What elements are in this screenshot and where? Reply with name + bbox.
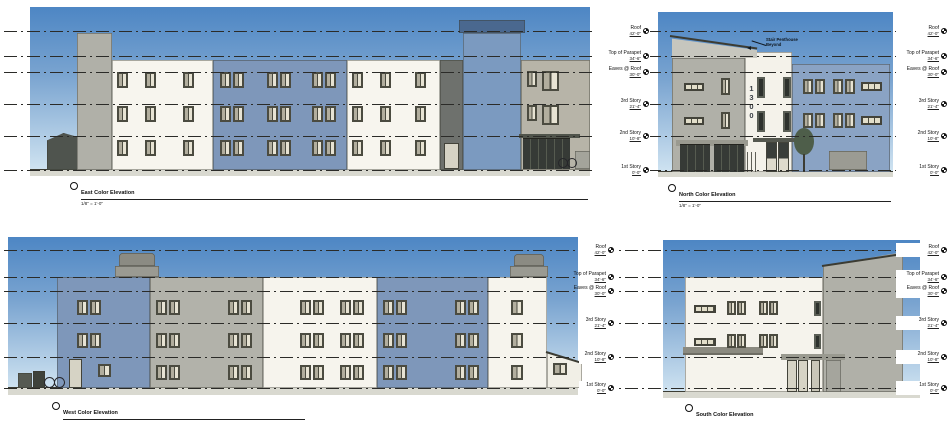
window-ribbon [684, 117, 704, 125]
north-elevation-title: North Color Elevation 1/8" = 1'-0" [668, 183, 891, 208]
window [352, 106, 363, 122]
window [169, 300, 180, 315]
window [300, 300, 311, 315]
window [313, 365, 324, 380]
window [241, 300, 252, 315]
datum-target-icon [608, 288, 614, 294]
window [737, 334, 746, 348]
title-text: North Color Elevation [679, 192, 736, 199]
level-elevation: 42'-0" [928, 250, 939, 255]
window [352, 140, 363, 156]
window-ribbon [694, 305, 716, 313]
datum-target-icon [941, 247, 947, 253]
level-elevation: 34'-6" [573, 277, 606, 282]
east-bicycle-wheel [567, 158, 577, 168]
window [468, 300, 479, 315]
window [90, 300, 101, 315]
level-marker: Roof42'-0" [592, 24, 650, 38]
window [267, 106, 278, 122]
datum-target-icon [941, 28, 947, 34]
north-bike-rack [747, 152, 759, 172]
level-elevation: 42'-0" [928, 31, 939, 36]
west-elevation-title: West Color Elevation 1/8" = 1'-0" [52, 401, 305, 421]
level-line [4, 170, 948, 171]
datum-target-icon [643, 133, 649, 139]
window [415, 106, 426, 122]
window [267, 140, 278, 156]
level-marker: Top of Parapet34'-6" [592, 49, 650, 63]
window-dark [814, 301, 821, 316]
title-scale: 1/8" = 1'-0" [81, 201, 588, 206]
level-elevation: 0'-0" [621, 170, 641, 175]
level-marker: 2nd Story10'-8" [592, 129, 650, 143]
datum-target-icon [941, 288, 947, 294]
title-scale: 1/8" = 1'-0" [679, 203, 891, 208]
window [220, 72, 231, 88]
window [815, 79, 825, 94]
east-entry-structure [47, 133, 80, 170]
level-line [4, 277, 948, 278]
level-marker: 2nd Story10'-8" [896, 129, 948, 143]
window [380, 106, 391, 122]
window [267, 72, 278, 88]
datum-target-icon [643, 101, 649, 107]
level-marker: 1st Story0'-0" [896, 381, 948, 395]
level-elevation: 10'-8" [585, 357, 606, 362]
detail-circle-icon [70, 182, 78, 190]
window [312, 140, 323, 156]
window [340, 365, 351, 380]
window [511, 300, 523, 315]
window [542, 105, 559, 125]
elevation-sheet: 1300 Stair Penthouse Beyond E [0, 0, 950, 421]
window [313, 333, 324, 348]
window [380, 140, 391, 156]
level-marker: Roof42'-0" [579, 243, 615, 257]
window-dark [783, 77, 791, 98]
west-roof-mech-base [510, 266, 548, 277]
window [845, 113, 855, 128]
window [396, 333, 407, 348]
east-elevation-title: East Color Elevation 1/8" = 1'-0" [70, 181, 588, 206]
window [313, 300, 324, 315]
level-line [4, 31, 948, 32]
window [380, 72, 391, 88]
window [145, 140, 156, 156]
datum-target-icon [941, 274, 947, 280]
window [468, 333, 479, 348]
window [340, 333, 351, 348]
window [300, 365, 311, 380]
window [727, 334, 736, 348]
window-dark [783, 111, 791, 132]
window [228, 333, 239, 348]
level-elevation: 10'-8" [918, 136, 939, 141]
level-elevation: 21'-4" [621, 104, 641, 109]
window [117, 106, 128, 122]
level-marker: Top of Parapet34'-6" [579, 270, 615, 284]
level-marker: Roof42'-0" [896, 24, 948, 38]
level-marker: 2nd Story10'-8" [579, 350, 615, 364]
window [220, 106, 231, 122]
window [233, 72, 244, 88]
window [383, 300, 394, 315]
window-dark [757, 111, 765, 132]
east-stair-tower [77, 33, 112, 170]
datum-target-icon [941, 133, 947, 139]
window [815, 113, 825, 128]
window [542, 71, 559, 91]
level-line [4, 323, 948, 324]
level-marker: Top of Parapet34'-6" [896, 270, 948, 284]
window [169, 333, 180, 348]
window [803, 113, 813, 128]
datum-target-icon [608, 320, 614, 326]
level-elevation: 30'-0" [907, 72, 939, 77]
datum-target-icon [643, 167, 649, 173]
north-tree [794, 128, 814, 155]
window [325, 72, 336, 88]
window [77, 333, 88, 348]
window [183, 106, 194, 122]
window [769, 334, 778, 348]
window [352, 72, 363, 88]
datum-target-icon [941, 354, 947, 360]
north-utility-box [829, 151, 867, 170]
window [383, 333, 394, 348]
window [312, 72, 323, 88]
detail-circle-icon [52, 402, 60, 410]
window-ribbon [861, 82, 882, 91]
level-line [4, 136, 948, 137]
window [527, 71, 537, 87]
window [117, 72, 128, 88]
level-marker: 1st Story0'-0" [592, 163, 650, 177]
window [396, 300, 407, 315]
north-storefront-panel [714, 144, 744, 172]
datum-target-icon [643, 69, 649, 75]
west-roof-mech-base [115, 266, 159, 277]
title-text: South Color Elevation [696, 412, 753, 419]
datum-target-icon [643, 53, 649, 59]
window [300, 333, 311, 348]
window [353, 365, 364, 380]
window [353, 300, 364, 315]
level-line [4, 291, 948, 292]
datum-target-icon [941, 101, 947, 107]
window-ribbon [861, 116, 882, 125]
window [759, 334, 768, 348]
detail-circle-icon [685, 404, 693, 412]
title-text: West Color Elevation [63, 410, 118, 417]
level-line [4, 56, 948, 57]
level-elevation: 0'-0" [586, 388, 606, 393]
window [241, 333, 252, 348]
window [280, 140, 291, 156]
penthouse-note: Stair Penthouse Beyond [766, 38, 800, 48]
level-elevation: 0'-0" [919, 388, 939, 393]
window [280, 106, 291, 122]
window-ribbon [694, 338, 716, 346]
datum-target-icon [608, 247, 614, 253]
window [415, 140, 426, 156]
west-roof-mech-unit [119, 253, 155, 266]
level-elevation: 34'-6" [906, 56, 939, 61]
level-elevation: 0'-0" [919, 170, 939, 175]
window [156, 333, 167, 348]
east-side-door [444, 143, 459, 169]
level-marker: Eaves @ Roof30'-0" [592, 65, 650, 79]
level-marker: Eaves @ Roof30'-0" [896, 284, 948, 298]
window [511, 365, 523, 380]
level-marker: Roof42'-0" [896, 243, 948, 257]
level-elevation: 21'-4" [919, 323, 939, 328]
datum-target-icon [608, 354, 614, 360]
window [759, 301, 768, 315]
level-marker: Eaves @ Roof30'-0" [896, 65, 948, 79]
level-elevation: 30'-0" [609, 72, 641, 77]
level-line [4, 388, 948, 389]
window [312, 106, 323, 122]
north-entry-door [778, 142, 789, 172]
window [228, 365, 239, 380]
window [383, 365, 394, 380]
window [721, 78, 730, 95]
window [845, 79, 855, 94]
east-elevator-tower [463, 33, 521, 170]
window [90, 333, 101, 348]
datum-target-icon [941, 167, 947, 173]
window [833, 79, 843, 94]
window [325, 106, 336, 122]
window-dark [814, 334, 821, 349]
west-roof-mech-unit [514, 254, 544, 266]
window [833, 113, 843, 128]
window [156, 300, 167, 315]
west-equipment-box [18, 373, 32, 388]
window [455, 333, 466, 348]
datum-target-icon [941, 69, 947, 75]
level-elevation: 42'-0" [630, 31, 641, 36]
window [77, 300, 88, 315]
level-marker: 3rd Story21'-4" [579, 316, 615, 330]
datum-target-icon [941, 385, 947, 391]
window [169, 365, 180, 380]
level-elevation: 10'-8" [918, 357, 939, 362]
window [241, 365, 252, 380]
window [353, 333, 364, 348]
level-elevation: 42'-0" [595, 250, 606, 255]
datum-target-icon [643, 28, 649, 34]
window [145, 72, 156, 88]
level-marker: 1st Story0'-0" [896, 163, 948, 177]
level-marker: 1st Story0'-0" [579, 381, 615, 395]
level-line [4, 250, 948, 251]
level-elevation: 21'-4" [586, 323, 606, 328]
detail-circle-icon [668, 184, 676, 192]
window [183, 72, 194, 88]
window [117, 140, 128, 156]
window [145, 106, 156, 122]
datum-target-icon [941, 53, 947, 59]
window [415, 72, 426, 88]
level-elevation: 10'-8" [620, 136, 641, 141]
west-equipment-box [33, 371, 45, 388]
window [228, 300, 239, 315]
level-marker: 3rd Story21'-4" [896, 97, 948, 111]
level-elevation: 34'-6" [906, 277, 939, 282]
level-marker: Top of Parapet34'-6" [896, 49, 948, 63]
title-text: East Color Elevation [81, 190, 135, 197]
window [233, 140, 244, 156]
level-line [4, 72, 948, 73]
window [455, 365, 466, 380]
window [396, 365, 407, 380]
window [803, 79, 813, 94]
window [721, 112, 730, 129]
datum-target-icon [608, 385, 614, 391]
window [727, 301, 736, 315]
window [156, 365, 167, 380]
north-storefront-panel [680, 144, 710, 172]
window [769, 301, 778, 315]
level-marker: Eaves @ Roof30'-0" [579, 284, 615, 298]
north-entry-door [766, 142, 777, 172]
window [737, 301, 746, 315]
address-sign: 1300 [747, 84, 756, 140]
level-elevation: 30'-0" [907, 291, 939, 296]
west-entry-door [69, 359, 82, 388]
window [553, 363, 567, 375]
note-arrowhead-icon [747, 46, 751, 50]
east-utility-box [575, 151, 590, 169]
level-elevation: 34'-6" [608, 56, 641, 61]
window [527, 105, 537, 121]
level-line [4, 104, 948, 105]
level-marker: 2nd Story10'-8" [896, 350, 948, 364]
window [340, 300, 351, 315]
window [511, 333, 523, 348]
west-bicycle-wheel [54, 377, 65, 388]
level-marker: 3rd Story21'-4" [592, 97, 650, 111]
penthouse-note-line2: Beyond [766, 43, 800, 48]
window-dark [757, 77, 765, 98]
window [183, 140, 194, 156]
level-elevation: 21'-4" [919, 104, 939, 109]
level-marker: 3rd Story21'-4" [896, 316, 948, 330]
window [468, 365, 479, 380]
level-elevation: 30'-0" [574, 291, 606, 296]
window [455, 300, 466, 315]
window [233, 106, 244, 122]
window [325, 140, 336, 156]
level-line [4, 357, 948, 358]
south-awning [683, 347, 763, 355]
datum-target-icon [608, 274, 614, 280]
window [220, 140, 231, 156]
window [280, 72, 291, 88]
window [98, 364, 111, 377]
south-elevation-title: South Color Elevation 1/8" = 1'-0" [685, 403, 897, 421]
datum-target-icon [941, 320, 947, 326]
window-ribbon [684, 83, 704, 91]
south-ground [663, 391, 920, 398]
